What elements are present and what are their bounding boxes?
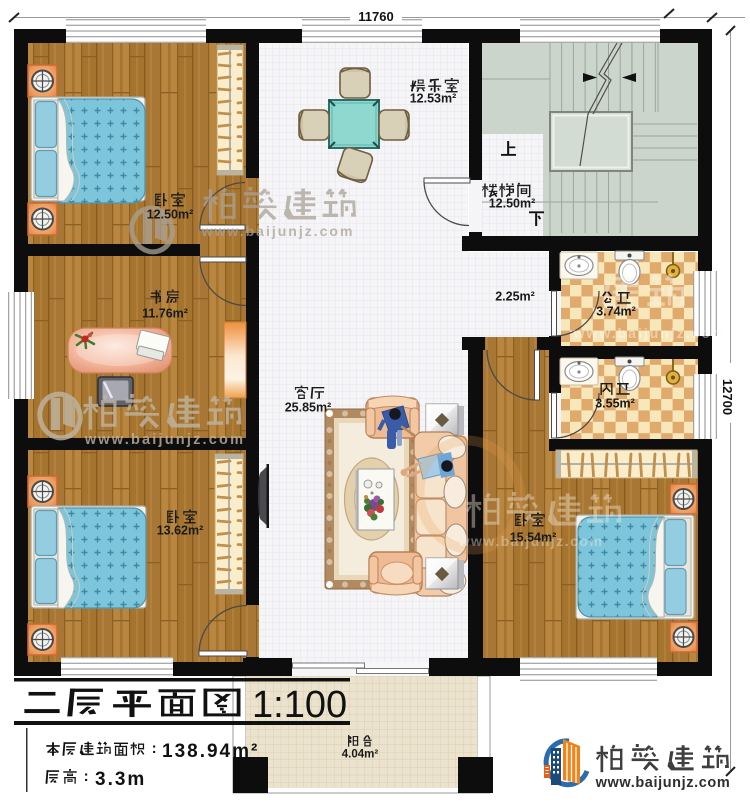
svg-text:25.85m²: 25.85m² <box>285 401 332 415</box>
svg-text:11760: 11760 <box>358 9 393 24</box>
svg-text:12.50m²: 12.50m² <box>489 197 536 211</box>
svg-text:13.62m²: 13.62m² <box>157 524 204 538</box>
svg-text:3.3m: 3.3m <box>95 769 146 790</box>
svg-text:1:100: 1:100 <box>252 684 347 726</box>
svg-text:4.04m²: 4.04m² <box>342 749 379 761</box>
svg-text:3.74m²: 3.74m² <box>596 305 636 319</box>
svg-text:3.55m²: 3.55m² <box>595 397 635 411</box>
svg-text:138.94m²: 138.94m² <box>162 741 259 762</box>
svg-text:www.baijunjz.com: www.baijunjz.com <box>201 223 355 239</box>
svg-text:www.baijunjz.com: www.baijunjz.com <box>84 432 245 448</box>
svg-text:12.53m²: 12.53m² <box>410 92 457 106</box>
svg-text:12700: 12700 <box>720 379 735 415</box>
svg-text:www.baijunjz.com: www.baijunjz.com <box>573 325 727 341</box>
svg-text:11.76m²: 11.76m² <box>142 307 188 321</box>
svg-text:2.25m²: 2.25m² <box>495 290 535 304</box>
svg-text:15.54m²: 15.54m² <box>510 531 557 545</box>
svg-text:12.50m²: 12.50m² <box>147 208 194 222</box>
svg-text:www.baijunjz.com: www.baijunjz.com <box>595 775 731 791</box>
